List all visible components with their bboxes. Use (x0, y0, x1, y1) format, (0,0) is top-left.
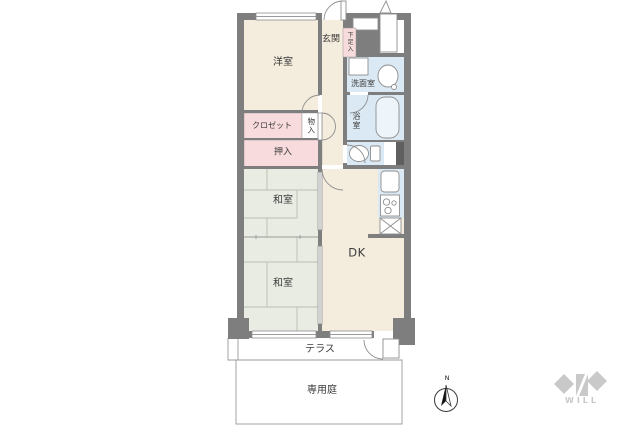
refrigerator-icon (380, 218, 401, 234)
sliding-door-lower (318, 246, 322, 324)
sliding-door-upper (318, 172, 322, 230)
room-label-japanese-lower: 和室 (273, 279, 293, 289)
terrace-door-icon (364, 339, 399, 359)
room-label-entrance: 玄関 (322, 36, 340, 45)
floorplan-canvas: 洋室 玄関 下足入 洗面室 浴室 クロゼット 物入 押入 和室 和室 DK テラ… (0, 0, 640, 427)
pillar-left (228, 318, 249, 339)
floorplan-drawing (0, 0, 640, 427)
window-bottom-right (330, 331, 372, 338)
window-top (256, 13, 316, 20)
label-terrace: テラス (305, 345, 335, 355)
will-logo-icon (554, 371, 607, 396)
label-private-garden: 専用庭 (307, 386, 337, 396)
room-label-washroom: 洗面室 (351, 80, 375, 88)
room-label-storage: 物入 (307, 118, 315, 135)
room-label-oshiire: 押入 (274, 149, 292, 158)
room-label-japanese-upper: 和室 (273, 196, 293, 206)
room-label-bathroom: 浴室 (352, 112, 360, 130)
stove-icon (381, 195, 400, 216)
north-label: N (445, 375, 450, 382)
north-arrow-icon (435, 385, 458, 412)
room-label-dk: DK (348, 247, 365, 259)
washing-machine-icon (349, 58, 368, 75)
will-logo-text: WILL (565, 397, 599, 405)
pipe-space (396, 142, 404, 165)
bathtub-icon (376, 97, 399, 138)
room-label-western: 洋室 (273, 58, 293, 68)
window-bottom-left (252, 331, 316, 338)
room-label-closet: クロゼット (252, 122, 292, 130)
room-label-shoe-cabinet: 下足入 (346, 32, 352, 53)
kitchen-sink-icon (381, 171, 399, 192)
storage-door-line (318, 113, 322, 140)
vent-roof-icon (380, 1, 391, 13)
